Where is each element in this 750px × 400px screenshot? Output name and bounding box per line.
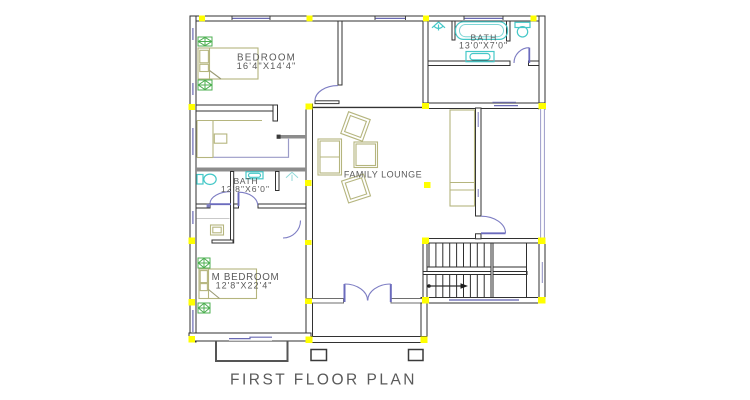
svg-text:FAMILY LOUNGE: FAMILY LOUNGE xyxy=(344,170,422,180)
svg-text:13'0"X7'0": 13'0"X7'0" xyxy=(459,40,508,50)
svg-text:16'4"X14'4": 16'4"X14'4" xyxy=(237,60,297,71)
svg-text:FIRST FLOOR PLAN: FIRST FLOOR PLAN xyxy=(230,371,417,388)
svg-text:12'8"X22'4": 12'8"X22'4" xyxy=(216,281,273,291)
svg-text:12'8"X6'0": 12'8"X6'0" xyxy=(221,184,270,194)
